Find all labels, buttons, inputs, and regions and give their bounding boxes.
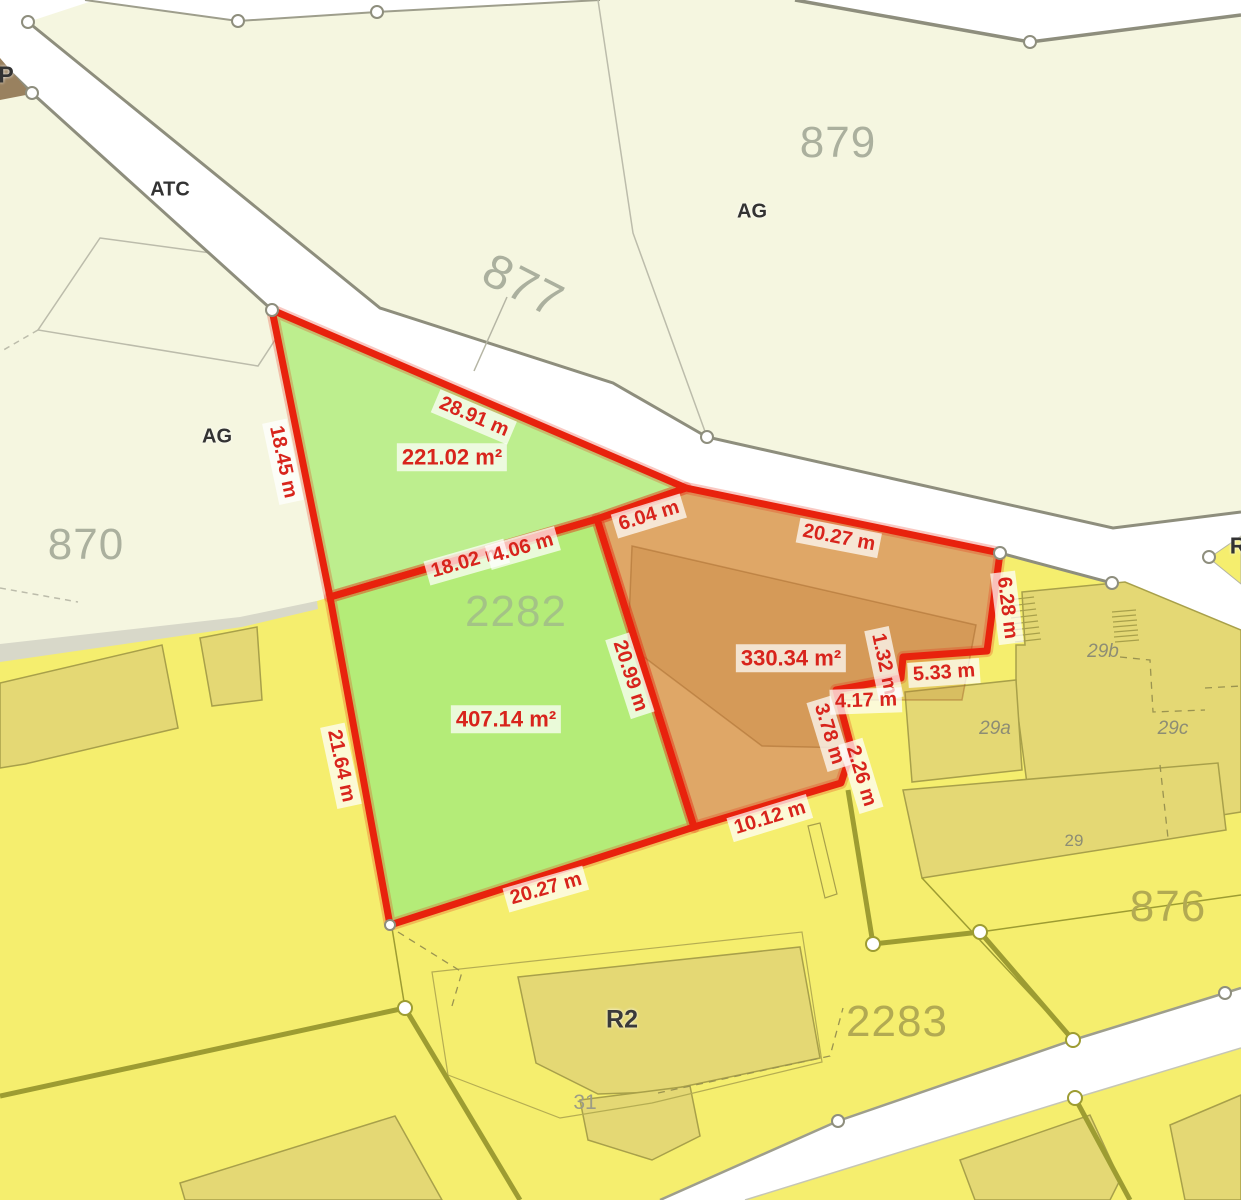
vertex-circle (1106, 577, 1118, 589)
label-r2-building: R2 (606, 1006, 638, 1035)
map-viewport: P ATC 879 AG 877 AG 870 2282 R 29b 29a 2… (0, 0, 1241, 1200)
measurement-orange-step-a: 5.33 m (907, 658, 981, 688)
parcel-870-label: 870 (48, 520, 124, 570)
vertex-circle (1024, 36, 1036, 48)
building-29b-label: 29b (1087, 641, 1119, 663)
label-ag-upper: AG (737, 201, 767, 224)
label-ag-left: AG (202, 426, 232, 449)
building-29c-label: 29c (1158, 718, 1189, 740)
label-r-edge: R (1230, 533, 1241, 560)
label-p-corner: P (0, 62, 14, 89)
vertex-circle (1203, 551, 1215, 563)
measurement-triangle-area: 221.02 m² (397, 443, 507, 471)
vertex-circle (232, 15, 244, 27)
parcel-876-label: 876 (1130, 882, 1206, 932)
vertex-circle (22, 16, 34, 28)
measurement-orange-step-c: 4.17 m (829, 687, 902, 715)
parcel-879-label: 879 (800, 118, 876, 168)
vertex-circle (371, 6, 383, 18)
label-road-atc: ATC (150, 179, 190, 202)
vertex-circle (866, 937, 880, 951)
vertex-circle (1068, 1091, 1082, 1105)
building-31-label: 31 (573, 1091, 596, 1115)
vertex-circle (973, 925, 987, 939)
vertex-circle (994, 547, 1006, 559)
parcel-2283-label: 2283 (846, 997, 948, 1047)
vertex-circle (1219, 987, 1231, 999)
vertex-circle (26, 87, 38, 99)
parcel-2282-label: 2282 (465, 587, 567, 637)
vertex-circle (701, 431, 713, 443)
vertex-circle (398, 1001, 412, 1015)
building-left-small (200, 627, 262, 706)
measurement-green-area: 407.14 m² (451, 705, 561, 733)
vertex-circle (385, 920, 395, 930)
vertex-circle (1066, 1033, 1080, 1047)
vertex-circle (832, 1115, 844, 1127)
vertex-circle (266, 304, 278, 316)
building-29-label: 29 (1065, 831, 1084, 851)
building-29a-label: 29a (979, 718, 1011, 740)
measurement-orange-area: 330.34 m² (736, 644, 846, 672)
